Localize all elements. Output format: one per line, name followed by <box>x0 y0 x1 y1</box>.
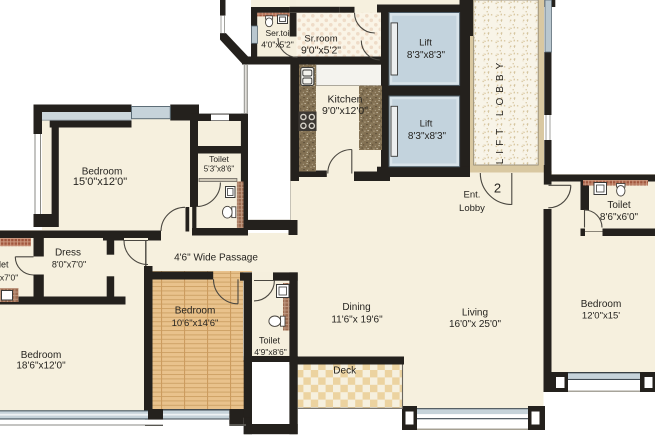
svg-text:11'6"x 19'6": 11'6"x 19'6" <box>331 315 383 326</box>
svg-text:Toilet: Toilet <box>0 260 9 270</box>
svg-text:LIFT LOBBY: LIFT LOBBY <box>495 58 506 165</box>
svg-text:12'0"x15': 12'0"x15' <box>582 311 620 322</box>
svg-text:Lobby: Lobby <box>459 203 485 214</box>
svg-text:4'0"x5'2": 4'0"x5'2" <box>261 40 293 50</box>
svg-text:15'0"x12'0": 15'0"x12'0" <box>73 176 127 188</box>
svg-text:10'6"x14'6": 10'6"x14'6" <box>172 318 219 329</box>
svg-text:Lift: Lift <box>420 119 433 130</box>
svg-text:Ent.: Ent. <box>464 190 481 201</box>
svg-text:Toilet: Toilet <box>209 154 229 164</box>
svg-text:Kitchen: Kitchen <box>327 94 362 106</box>
svg-text:9'0"x12'0": 9'0"x12'0" <box>322 105 368 117</box>
svg-text:Toilet: Toilet <box>607 200 631 211</box>
svg-text:4'9"x8'6": 4'9"x8'6" <box>254 347 286 357</box>
svg-text:Deck: Deck <box>333 366 357 377</box>
svg-text:Ser.toi: Ser.toi <box>265 28 289 38</box>
svg-text:8'0"x7'0": 8'0"x7'0" <box>52 260 86 270</box>
svg-text:8'6"x6'0": 8'6"x6'0" <box>600 212 639 223</box>
svg-text:2: 2 <box>494 181 501 196</box>
svg-text:Dining: Dining <box>342 302 370 313</box>
svg-text:Sr.room: Sr.room <box>304 34 337 45</box>
svg-text:Bedroom: Bedroom <box>175 306 216 317</box>
svg-text:8'0"x7'0": 8'0"x7'0" <box>0 273 18 283</box>
svg-text:Lift: Lift <box>419 38 432 49</box>
svg-text:18'6"x12'0": 18'6"x12'0" <box>16 361 66 372</box>
svg-text:16'0"x 25'0": 16'0"x 25'0" <box>449 319 502 330</box>
svg-text:Toilet: Toilet <box>259 336 281 346</box>
svg-text:8'3"x8'3": 8'3"x8'3" <box>407 50 446 61</box>
svg-text:Bedroom: Bedroom <box>581 299 622 310</box>
svg-text:Living: Living <box>462 308 488 319</box>
svg-text:5'3"x8'6": 5'3"x8'6" <box>204 165 235 174</box>
svg-text:+: + <box>646 176 650 183</box>
svg-text:9'0"x5'2": 9'0"x5'2" <box>301 45 341 57</box>
svg-text:8'3"x8'3": 8'3"x8'3" <box>408 131 447 142</box>
svg-text:Bedroom: Bedroom <box>21 350 62 361</box>
svg-text:4'6" Wide Passage: 4'6" Wide Passage <box>174 253 258 264</box>
svg-text:Dress: Dress <box>55 248 81 259</box>
